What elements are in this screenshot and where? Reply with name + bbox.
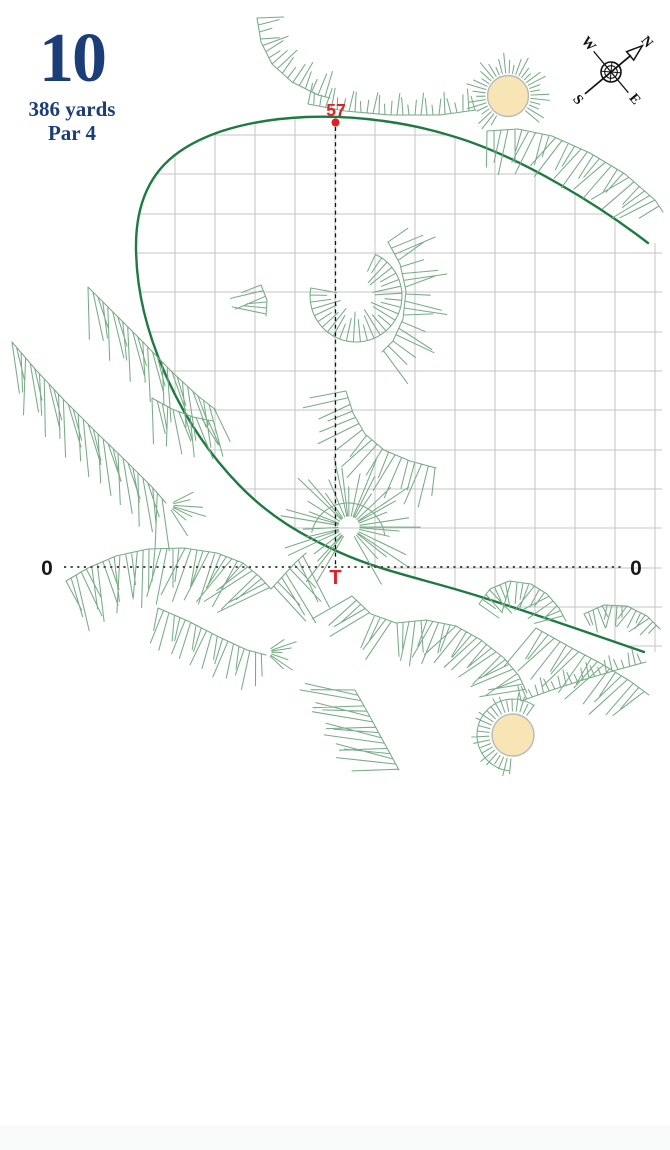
- bunker-bottom: [492, 714, 534, 756]
- compass-e: E: [626, 91, 643, 108]
- distance-grid: [60, 112, 662, 660]
- carry-distance-label: 57: [326, 100, 345, 120]
- compass-s: S: [569, 92, 586, 108]
- hole-map-svg: 0 0 57 T N E S W: [0, 0, 670, 1150]
- zero-label-left: 0: [41, 557, 53, 580]
- fairway-outline: [136, 117, 648, 652]
- compass-rose: N E S W: [544, 4, 670, 136]
- bottom-fade-band: [0, 1125, 670, 1150]
- zero-label-right: 0: [630, 557, 642, 580]
- yardage-book-page: 10 386 yards Par 4 0 0 57 T: [0, 0, 670, 1150]
- compass-w: W: [578, 34, 598, 54]
- bunker-top: [488, 76, 529, 117]
- slope-hachures: [12, 17, 663, 776]
- tee-marker: T: [329, 567, 341, 589]
- carry-distance-dot: [332, 119, 340, 127]
